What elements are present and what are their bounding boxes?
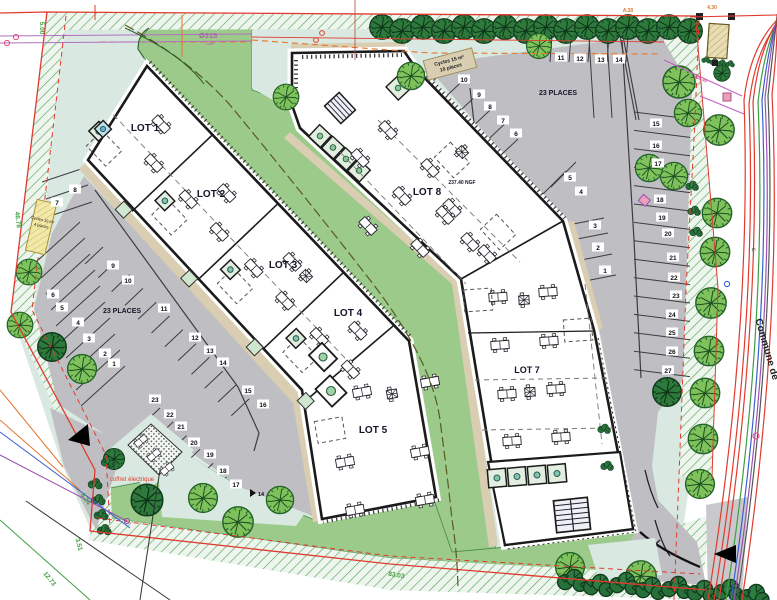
svg-text:fonte: fonte (206, 42, 214, 46)
svg-text:13: 13 (597, 57, 605, 64)
svg-text:15: 15 (652, 121, 660, 128)
svg-text:4.30: 4.30 (707, 5, 717, 11)
svg-text:27: 27 (664, 368, 672, 375)
svg-text:Ø315: Ø315 (199, 31, 217, 40)
svg-text:A.30: A.30 (623, 8, 634, 14)
svg-text:12: 12 (191, 335, 199, 342)
svg-text:19: 19 (658, 215, 666, 222)
svg-text:14: 14 (615, 57, 623, 64)
svg-text:6: 6 (514, 131, 518, 138)
svg-text:11: 11 (161, 306, 168, 313)
svg-text:16: 16 (259, 402, 267, 409)
svg-text:LOT 3: LOT 3 (269, 260, 298, 271)
svg-text:5: 5 (568, 175, 572, 182)
svg-text:2: 2 (596, 245, 600, 252)
svg-text:2: 2 (103, 351, 107, 358)
svg-text:LOT 4: LOT 4 (334, 308, 363, 319)
svg-text:8: 8 (488, 104, 492, 111)
svg-text:13: 13 (206, 348, 214, 355)
svg-text:21: 21 (177, 424, 185, 431)
svg-text:7: 7 (501, 118, 505, 125)
svg-text:26: 26 (668, 349, 676, 356)
svg-text:14: 14 (219, 360, 227, 367)
svg-text:17: 17 (232, 482, 240, 489)
svg-text:22: 22 (166, 412, 174, 419)
svg-text:18: 18 (656, 197, 664, 204)
svg-text:5: 5 (60, 305, 64, 312)
svg-text:237.40 NGF: 237.40 NGF (448, 180, 475, 186)
svg-text:17: 17 (654, 161, 662, 168)
svg-text:coffret électrique: coffret électrique (110, 477, 155, 483)
svg-text:21: 21 (669, 255, 677, 262)
svg-text:8: 8 (73, 187, 77, 194)
svg-text:3: 3 (593, 223, 597, 230)
svg-text:3: 3 (87, 336, 91, 343)
svg-text:10: 10 (460, 77, 468, 84)
svg-text:5.00: 5.00 (38, 22, 45, 35)
svg-text:7: 7 (55, 200, 59, 207)
svg-text:18: 18 (219, 468, 227, 475)
svg-text:10: 10 (124, 278, 132, 285)
svg-text:19: 19 (206, 452, 214, 459)
svg-text:20: 20 (190, 440, 198, 447)
svg-text:LOT 8: LOT 8 (413, 187, 442, 198)
svg-text:22: 22 (670, 275, 678, 282)
svg-text:25: 25 (668, 330, 676, 337)
svg-text:4: 4 (76, 320, 80, 327)
svg-text:LOT 7: LOT 7 (514, 365, 540, 375)
svg-text:9: 9 (111, 263, 115, 270)
svg-text:LOT 2: LOT 2 (197, 189, 226, 200)
svg-text:16: 16 (652, 143, 660, 150)
svg-text:24: 24 (668, 312, 676, 319)
svg-text:9: 9 (477, 92, 481, 99)
svg-text:LOT 1: LOT 1 (131, 123, 160, 134)
svg-text:4: 4 (579, 189, 583, 196)
svg-text:23: 23 (151, 397, 159, 404)
svg-text:11: 11 (558, 55, 565, 62)
svg-text:20: 20 (664, 231, 672, 238)
svg-text:1: 1 (112, 361, 116, 368)
svg-text:12: 12 (576, 56, 584, 63)
svg-text:6: 6 (51, 292, 55, 299)
svg-text:14: 14 (258, 492, 265, 498)
svg-text:LOT 5: LOT 5 (359, 425, 388, 436)
svg-text:1: 1 (603, 268, 607, 275)
svg-text:23 PLACES: 23 PLACES (539, 90, 577, 97)
svg-text:23 PLACES: 23 PLACES (103, 308, 141, 315)
svg-text:23: 23 (672, 293, 680, 300)
svg-text:15: 15 (244, 388, 252, 395)
